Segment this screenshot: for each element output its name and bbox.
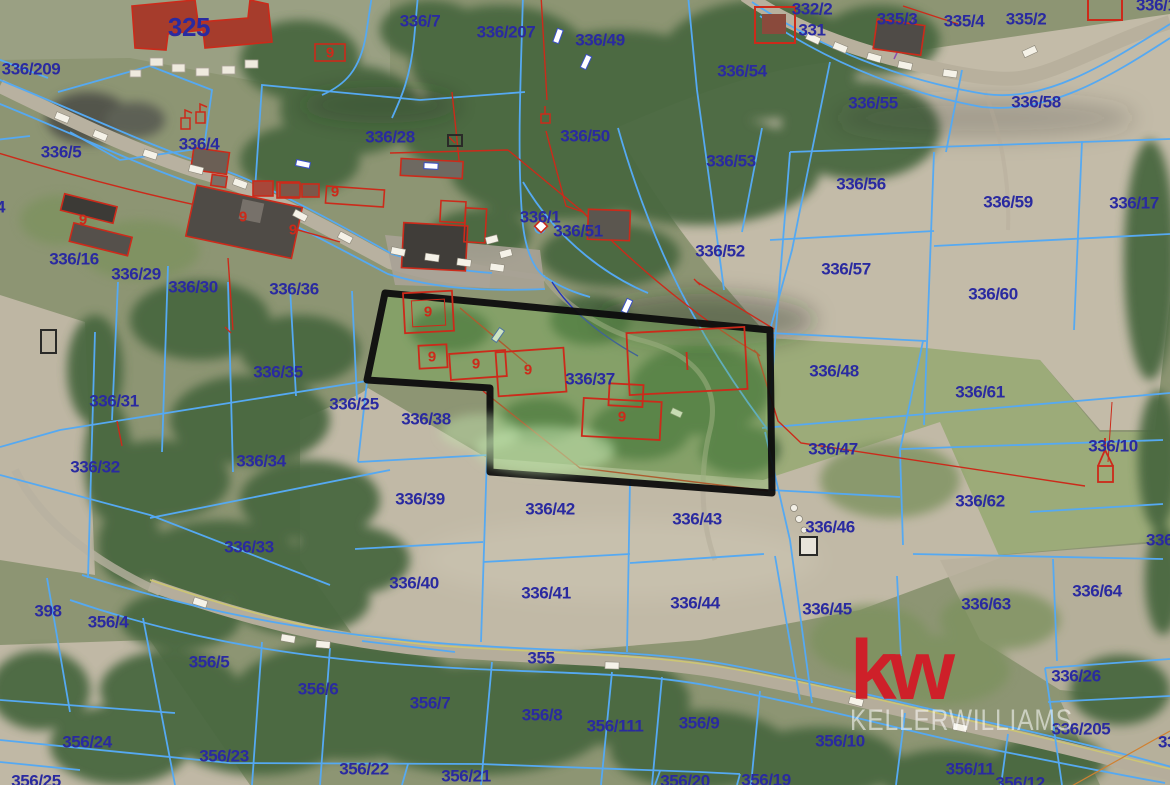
house-336-1 bbox=[587, 209, 630, 240]
cadastral-map: 325336/209336/5336/44336/7336/207336/493… bbox=[0, 0, 1170, 785]
map-canvas bbox=[0, 0, 1170, 785]
